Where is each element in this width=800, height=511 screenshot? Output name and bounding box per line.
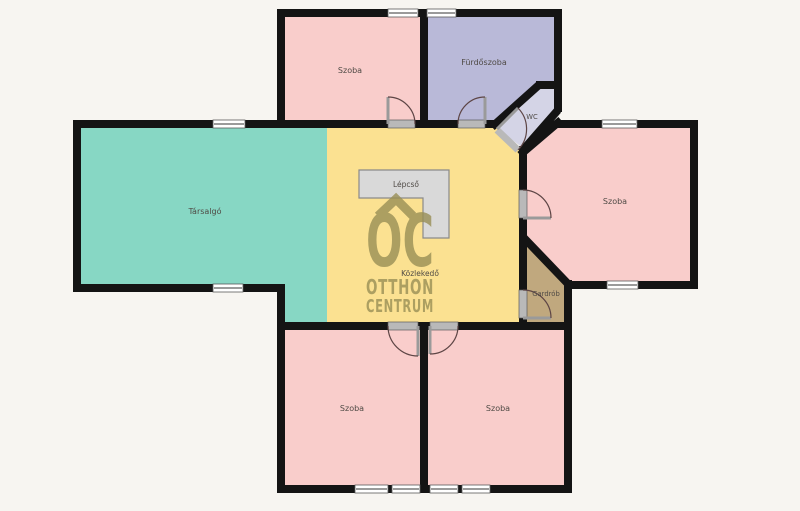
door-sill	[430, 322, 458, 330]
label-wc: WC	[526, 113, 538, 121]
door-sill	[519, 290, 527, 318]
floorplan-svg: OC OTTHON CENTRUM Szoba Fürdőszoba WC Tá…	[0, 0, 800, 511]
window	[388, 9, 418, 17]
window	[462, 485, 490, 493]
label-lepcso: Lépcső	[393, 180, 419, 189]
label-bottom-left-szoba: Szoba	[340, 404, 364, 413]
window	[355, 485, 388, 493]
label-top-szoba: Szoba	[338, 66, 362, 75]
window	[213, 120, 245, 128]
watermark-logo: OC OTTHON CENTRUM	[366, 199, 434, 317]
door-sill	[388, 322, 418, 330]
door-sill	[519, 190, 527, 218]
window	[430, 485, 458, 493]
watermark-line1: OTTHON	[366, 275, 434, 299]
watermark-line2: CENTRUM	[366, 297, 434, 317]
label-kozlekedo: Közlekedő	[401, 269, 439, 278]
label-tarsalgo: Társalgó	[187, 206, 221, 216]
label-right-szoba: Szoba	[603, 197, 627, 206]
label-furdoszoba: Fürdőszoba	[461, 58, 507, 67]
window	[392, 485, 420, 493]
window	[427, 9, 456, 17]
door-sill	[388, 120, 415, 128]
window	[602, 120, 637, 128]
window	[213, 284, 243, 292]
window	[607, 281, 638, 289]
label-bottom-right-szoba: Szoba	[486, 404, 510, 413]
door-sill	[458, 120, 485, 128]
floorplan: OC OTTHON CENTRUM Szoba Fürdőszoba WC Tá…	[0, 0, 800, 511]
label-gardrob: Gardrób	[532, 290, 560, 298]
